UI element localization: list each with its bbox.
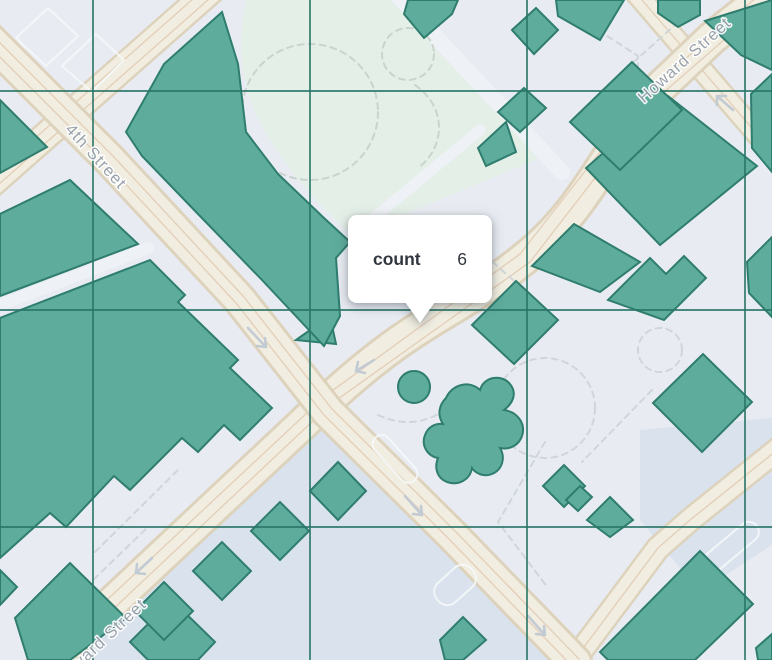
tooltip-box: count 6 bbox=[348, 215, 492, 303]
building bbox=[512, 8, 558, 54]
tooltip-field-value: 6 bbox=[457, 249, 467, 270]
plaza-path bbox=[378, 408, 448, 422]
building bbox=[556, 0, 624, 40]
map-canvas[interactable]: 4th Street Howard Street Howard Street bbox=[0, 0, 772, 660]
building bbox=[751, 74, 772, 172]
blob-building bbox=[424, 378, 523, 483]
building bbox=[756, 634, 772, 660]
tooltip-caret-icon bbox=[405, 302, 435, 323]
building bbox=[747, 237, 772, 317]
building bbox=[587, 497, 633, 537]
circle-building bbox=[398, 371, 430, 403]
plaza-path bbox=[638, 328, 682, 372]
map-tooltip: count 6 bbox=[348, 215, 492, 303]
map-viewport: 4th Street Howard Street Howard Street c… bbox=[0, 0, 772, 660]
tooltip-field-label: count bbox=[373, 249, 421, 270]
building bbox=[0, 570, 17, 605]
